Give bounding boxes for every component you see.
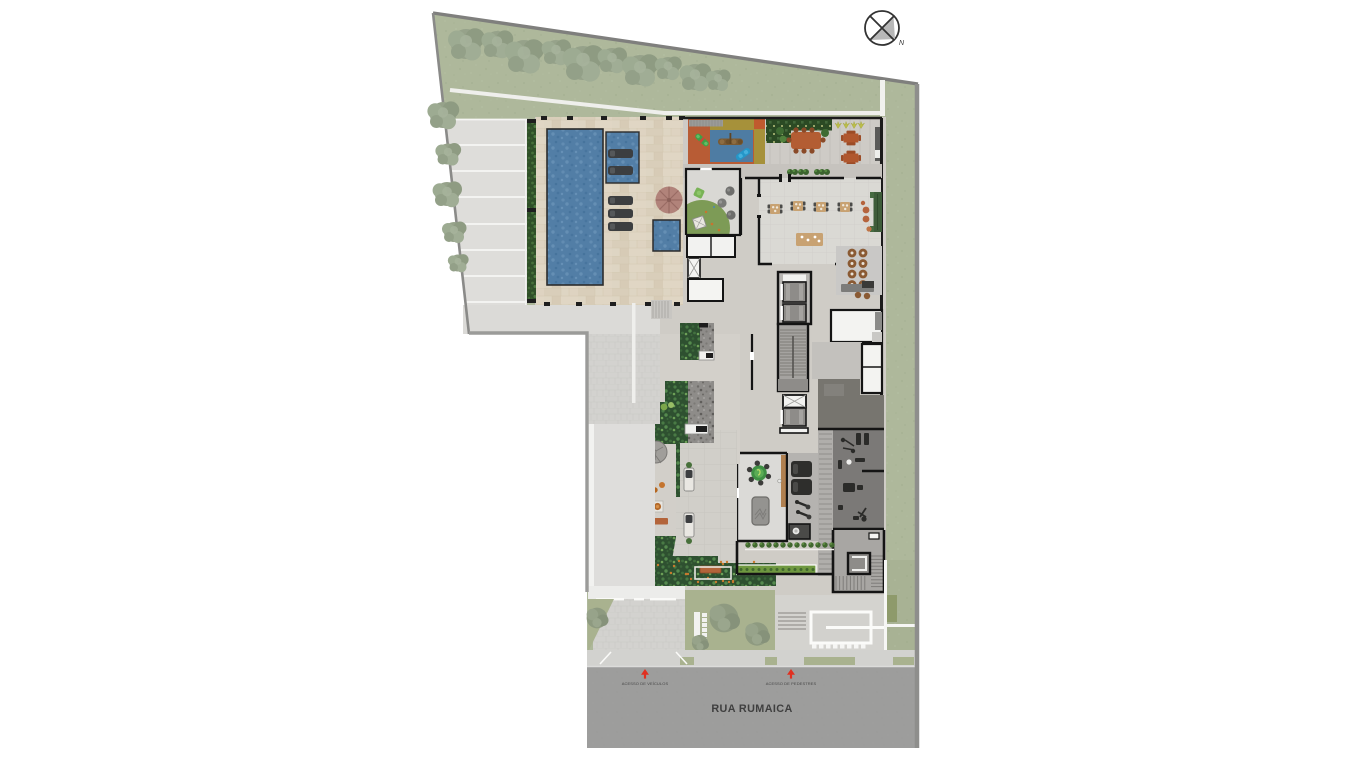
svg-text:RUA RUMAICA: RUA RUMAICA [711,703,792,715]
svg-text:ACESSO DE PEDESTRES: ACESSO DE PEDESTRES [766,681,817,686]
svg-text:ACESSO DE VEÍCULOS: ACESSO DE VEÍCULOS [622,681,669,686]
